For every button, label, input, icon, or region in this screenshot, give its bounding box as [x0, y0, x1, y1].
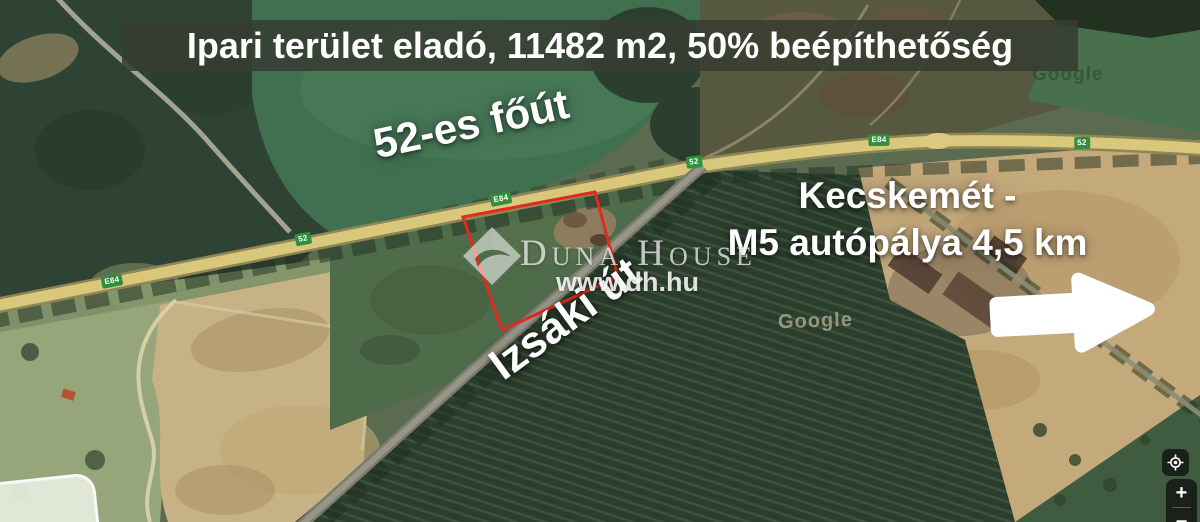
- route-badge-52: 52: [686, 155, 703, 169]
- route-badge-e84: E84: [868, 134, 889, 146]
- dunahouse-url: www.dh.hu: [556, 267, 699, 298]
- my-location-icon: [1167, 454, 1184, 471]
- listing-banner: Ipari terület eladó, 11482 m2, 50% beépí…: [122, 20, 1078, 71]
- my-location-button[interactable]: [1162, 449, 1189, 476]
- zoom-in-button[interactable]: +: [1166, 479, 1197, 507]
- white-structure: [0, 474, 101, 522]
- google-watermark: Google: [778, 309, 854, 335]
- zoom-control[interactable]: + −: [1166, 479, 1197, 522]
- route-badge-52: 52: [1074, 137, 1090, 149]
- zoom-out-button[interactable]: −: [1166, 508, 1197, 522]
- satellite-map[interactable]: E84 52 E84 52 E84 52 Google Google 52-es…: [0, 0, 1200, 522]
- destination-line1: Kecskemét -: [690, 172, 1125, 219]
